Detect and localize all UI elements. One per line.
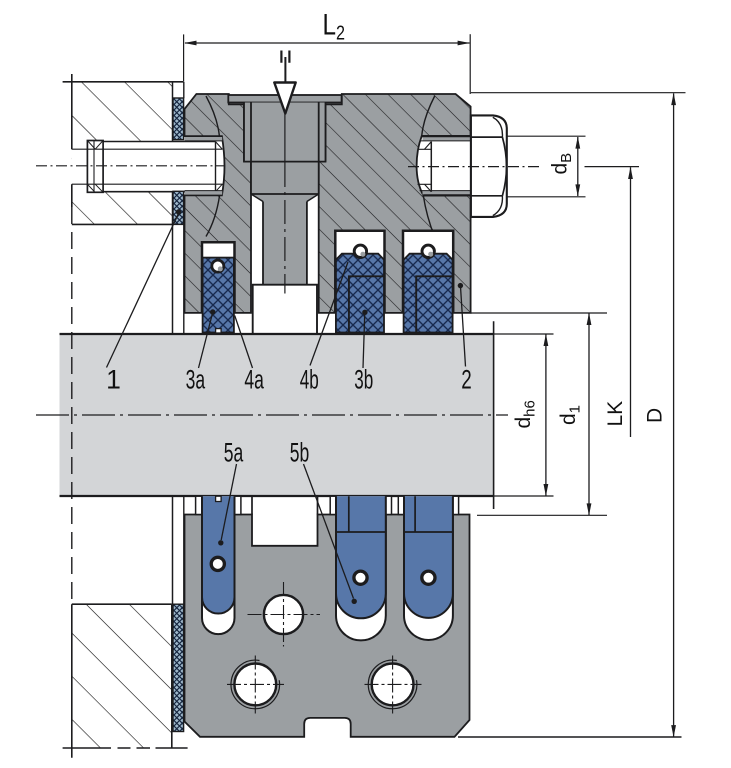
svg-text:D: D: [644, 408, 667, 423]
svg-text:4b: 4b: [300, 365, 319, 395]
svg-text:5b: 5b: [290, 438, 310, 468]
svg-text:1: 1: [106, 365, 121, 395]
svg-text:5a: 5a: [224, 438, 244, 468]
svg-text:LK: LK: [604, 401, 627, 427]
svg-text:3b: 3b: [354, 365, 373, 395]
svg-text:2: 2: [461, 365, 472, 395]
svg-text:3a: 3a: [186, 365, 206, 395]
svg-text:4a: 4a: [244, 365, 264, 395]
